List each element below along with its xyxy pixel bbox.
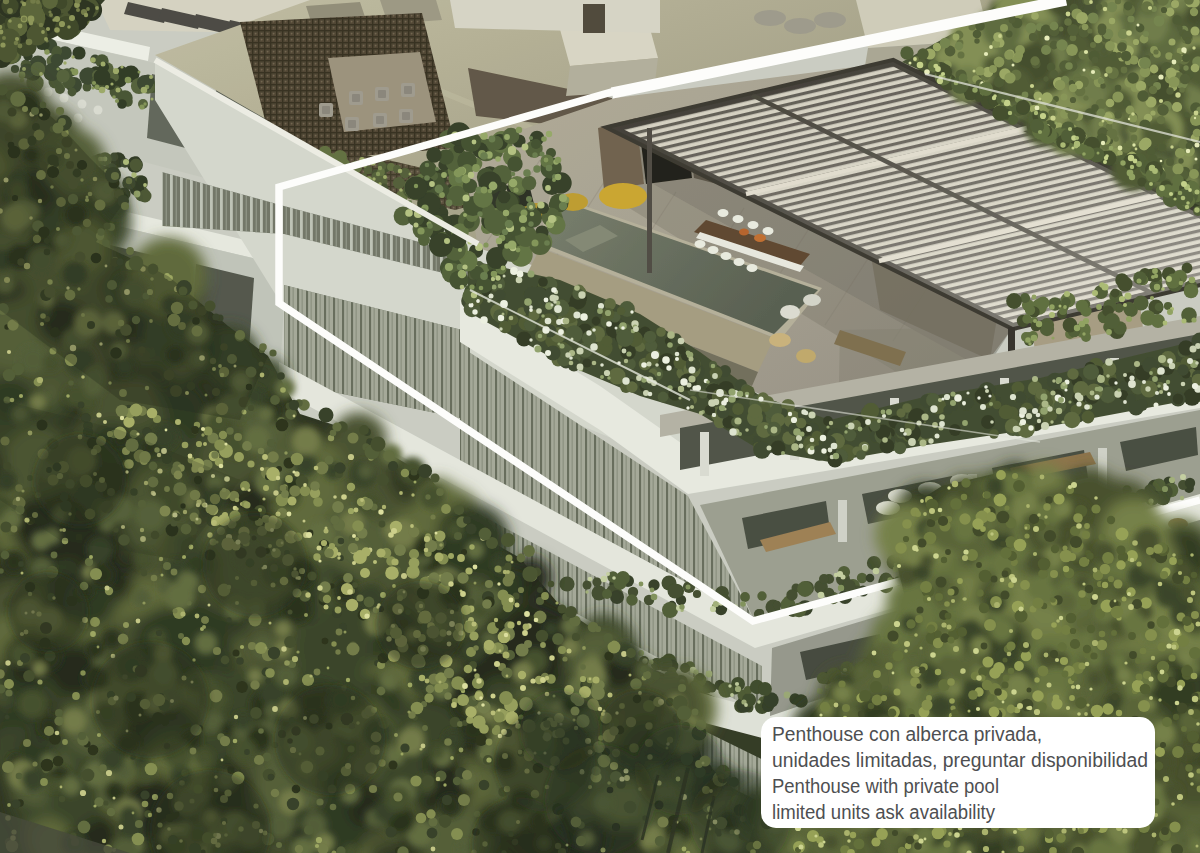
svg-text:unidades limitadas, preguntar: unidades limitadas, preguntar disponibil… <box>772 749 1148 771</box>
svg-text:limited units ask availability: limited units ask availability <box>772 801 995 823</box>
svg-text:Penthouse with private pool: Penthouse with private pool <box>772 775 999 797</box>
svg-text:Penthouse con alberca privada,: Penthouse con alberca privada, <box>772 723 1042 745</box>
